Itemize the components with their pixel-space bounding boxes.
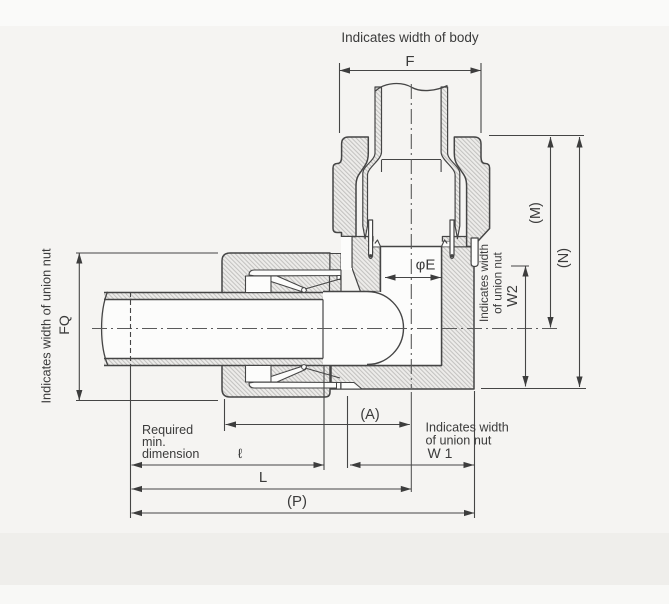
- svg-text:Indicates width: Indicates width: [477, 244, 491, 322]
- svg-text:Indicates width: Indicates width: [426, 421, 509, 435]
- svg-text:FQ: FQ: [56, 315, 72, 335]
- svg-text:φE: φE: [416, 257, 436, 274]
- svg-text:F: F: [405, 53, 414, 70]
- svg-text:W 1: W 1: [428, 445, 453, 461]
- svg-text:L: L: [259, 469, 267, 486]
- svg-text:W2: W2: [505, 285, 521, 307]
- svg-text:(A): (A): [360, 407, 379, 423]
- svg-text:dimension: dimension: [142, 447, 199, 461]
- svg-text:of union nut: of union nut: [491, 251, 505, 313]
- svg-text:Indicates width of union nut: Indicates width of union nut: [39, 248, 54, 404]
- svg-text:(M): (M): [528, 202, 544, 224]
- svg-text:(P): (P): [287, 493, 307, 510]
- svg-text:(N): (N): [556, 248, 572, 268]
- svg-text:Indicates width of body: Indicates width of body: [341, 30, 479, 45]
- svg-text:ℓ: ℓ: [238, 446, 243, 461]
